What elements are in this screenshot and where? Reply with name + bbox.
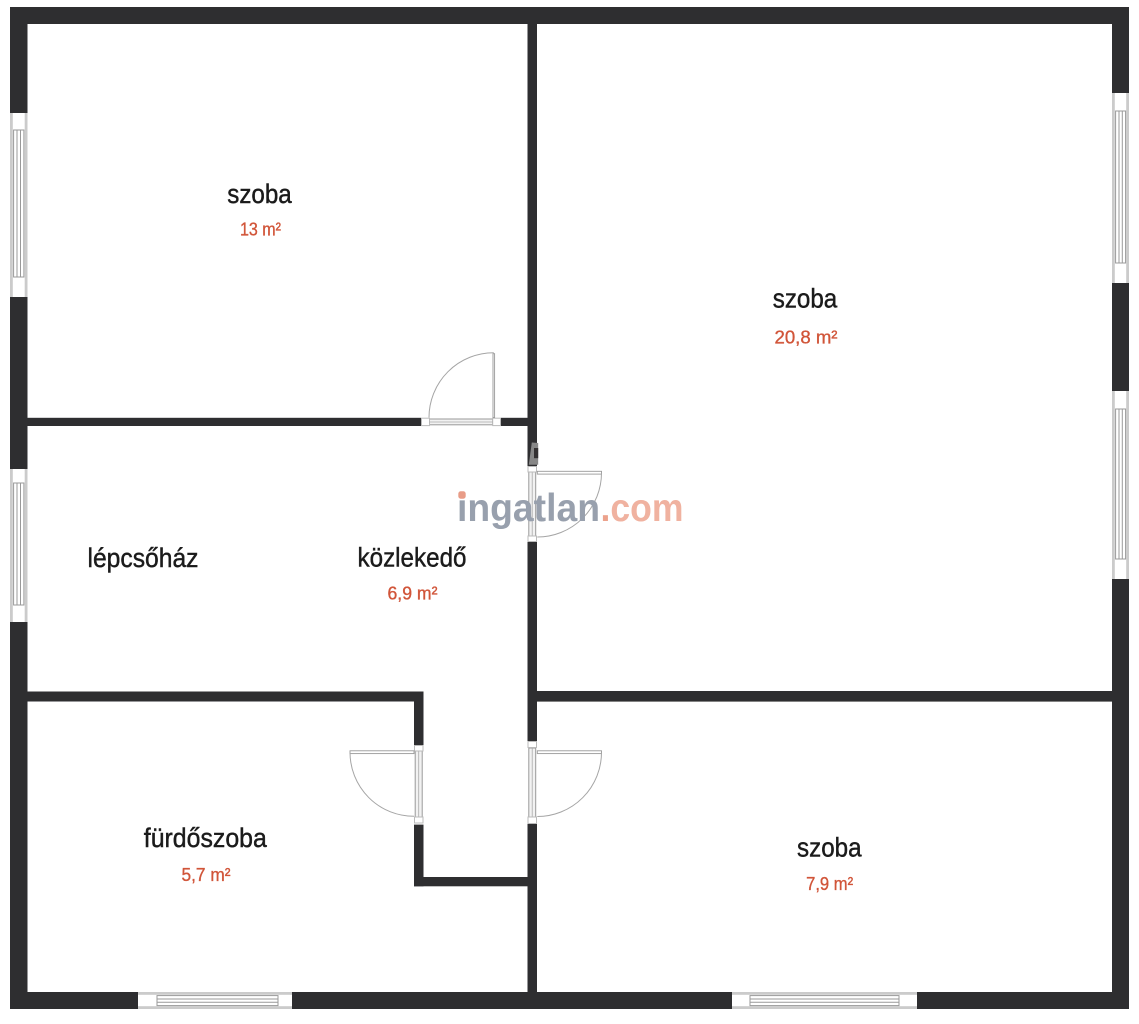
svg-text:közlekedő: közlekedő [358,543,467,573]
svg-text:7,9 m²: 7,9 m² [806,873,853,894]
svg-text:.com: .com [601,487,684,530]
svg-text:13 m²: 13 m² [240,219,281,240]
svg-text:szoba: szoba [773,284,838,314]
svg-text:lépcsőház: lépcsőház [88,543,199,573]
svg-text:fürdőszoba: fürdőszoba [144,823,268,853]
svg-text:szoba: szoba [797,833,862,863]
svg-text:6,9 m²: 6,9 m² [388,582,438,603]
svg-text:szoba: szoba [227,179,292,209]
svg-text:5,7 m²: 5,7 m² [182,864,231,885]
svg-text:20,8 m²: 20,8 m² [775,327,838,348]
svg-text:ıngatlan: ıngatlan [457,487,600,530]
